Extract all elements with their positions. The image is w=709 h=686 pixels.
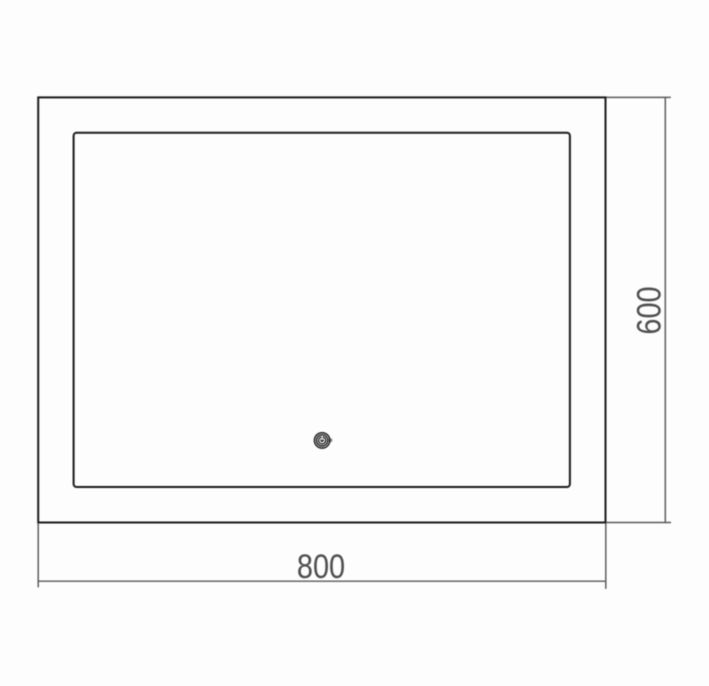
svg-text:800: 800 (297, 547, 345, 586)
svg-text:600: 600 (629, 286, 668, 334)
